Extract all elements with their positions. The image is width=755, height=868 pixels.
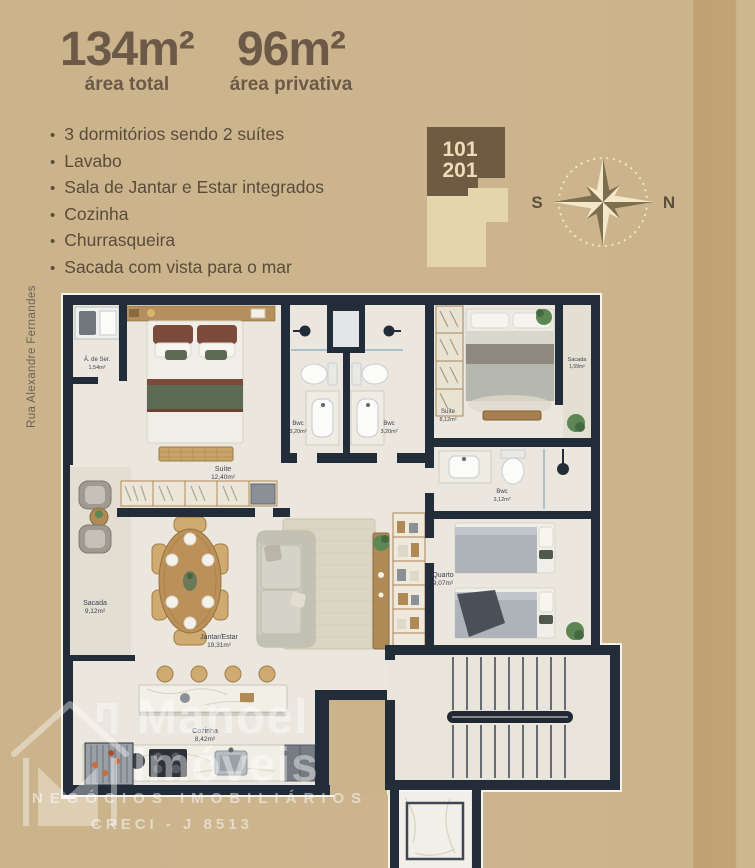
label-suite2-name: Suíte (441, 409, 456, 415)
label-bwc2-area: 3,20m² (380, 429, 397, 435)
label-bwc3-name: Bwc (496, 489, 507, 495)
label-area-servico-name: Á. de Ser. (84, 356, 111, 363)
label-sacada-suite-area: 1,59m² (569, 364, 585, 370)
compass-south-label: S (531, 193, 542, 212)
feature-item: 3 dormitórios sendo 2 suítes (50, 122, 324, 149)
label-area-servico-area: 1,54m² (88, 365, 105, 371)
suite-balcony-plant (567, 414, 585, 432)
unit-badge: 101 201 (424, 124, 514, 274)
label-suite2-area: 8,12m² (439, 417, 456, 423)
label-cozinha-name: Cozinha (192, 728, 218, 735)
feature-item: Sala de Jantar e Estar integrados (50, 175, 324, 202)
label-bwc3-area: 3,12m² (493, 497, 510, 503)
compass-star: S N (531, 158, 675, 246)
label-sacada-suite-name: Sacada (568, 357, 588, 363)
label-bwc1-name: Bwc (292, 421, 303, 427)
suite-2-furniture (436, 306, 554, 420)
compass-north-label: N (663, 193, 675, 212)
feature-item: Lavabo (50, 149, 324, 176)
label-suite-master-area: 12,40m² (211, 474, 236, 481)
metric-total-area: 134m² área total (60, 26, 194, 96)
feature-item: Sacada com vista para o mar (50, 255, 324, 282)
living-sofa (257, 519, 375, 649)
badge-footprint-light (427, 188, 508, 267)
private-area-value: 96m² (237, 26, 345, 74)
compass-rose: S N (528, 146, 680, 258)
barbecue-grill (85, 743, 133, 785)
feature-item: Cozinha (50, 202, 324, 229)
elevator-shaft (399, 792, 471, 868)
label-sacada-area: 9,12m² (85, 608, 106, 615)
label-cozinha-area: 8,42m² (195, 736, 216, 743)
laundry-fixtures (75, 307, 119, 339)
total-area-label: área total (85, 74, 169, 96)
living-sideboard-shelf (373, 513, 425, 651)
total-area-value: 134m² (60, 26, 194, 74)
area-metrics: 134m² área total 96m² área privativa (60, 26, 352, 96)
metric-private-area: 96m² área privativa (230, 26, 353, 96)
label-jantar-estar-area: 19,31m² (207, 642, 232, 649)
flyer-background: 134m² área total 96m² área privativa 3 d… (0, 0, 755, 868)
label-bwc2-name: Bwc (383, 421, 394, 427)
label-jantar-estar-name: Jantar/Estar (200, 634, 238, 641)
label-bwc1-area: 3,20m² (289, 429, 306, 435)
label-quarto-name: Quarto (432, 572, 454, 579)
unit-number-2: 201 (442, 159, 477, 182)
unit-number-1: 101 (442, 138, 477, 161)
street-name-label: Rua Alexandre Fernandes (26, 296, 38, 428)
feature-list: 3 dormitórios sendo 2 suítes Lavabo Sala… (50, 122, 324, 281)
label-suite-master-name: Suíte (215, 466, 231, 473)
master-suite-closet (121, 481, 277, 506)
label-quarto-area: 9,07m² (433, 580, 454, 587)
label-sacada-name: Sacada (83, 600, 107, 607)
feature-item: Churrasqueira (50, 228, 324, 255)
floor-plan: Á. de Ser. 1,54m² Suíte 12,40m² Bwc 3,20… (55, 293, 625, 868)
private-area-label: área privativa (230, 74, 353, 96)
